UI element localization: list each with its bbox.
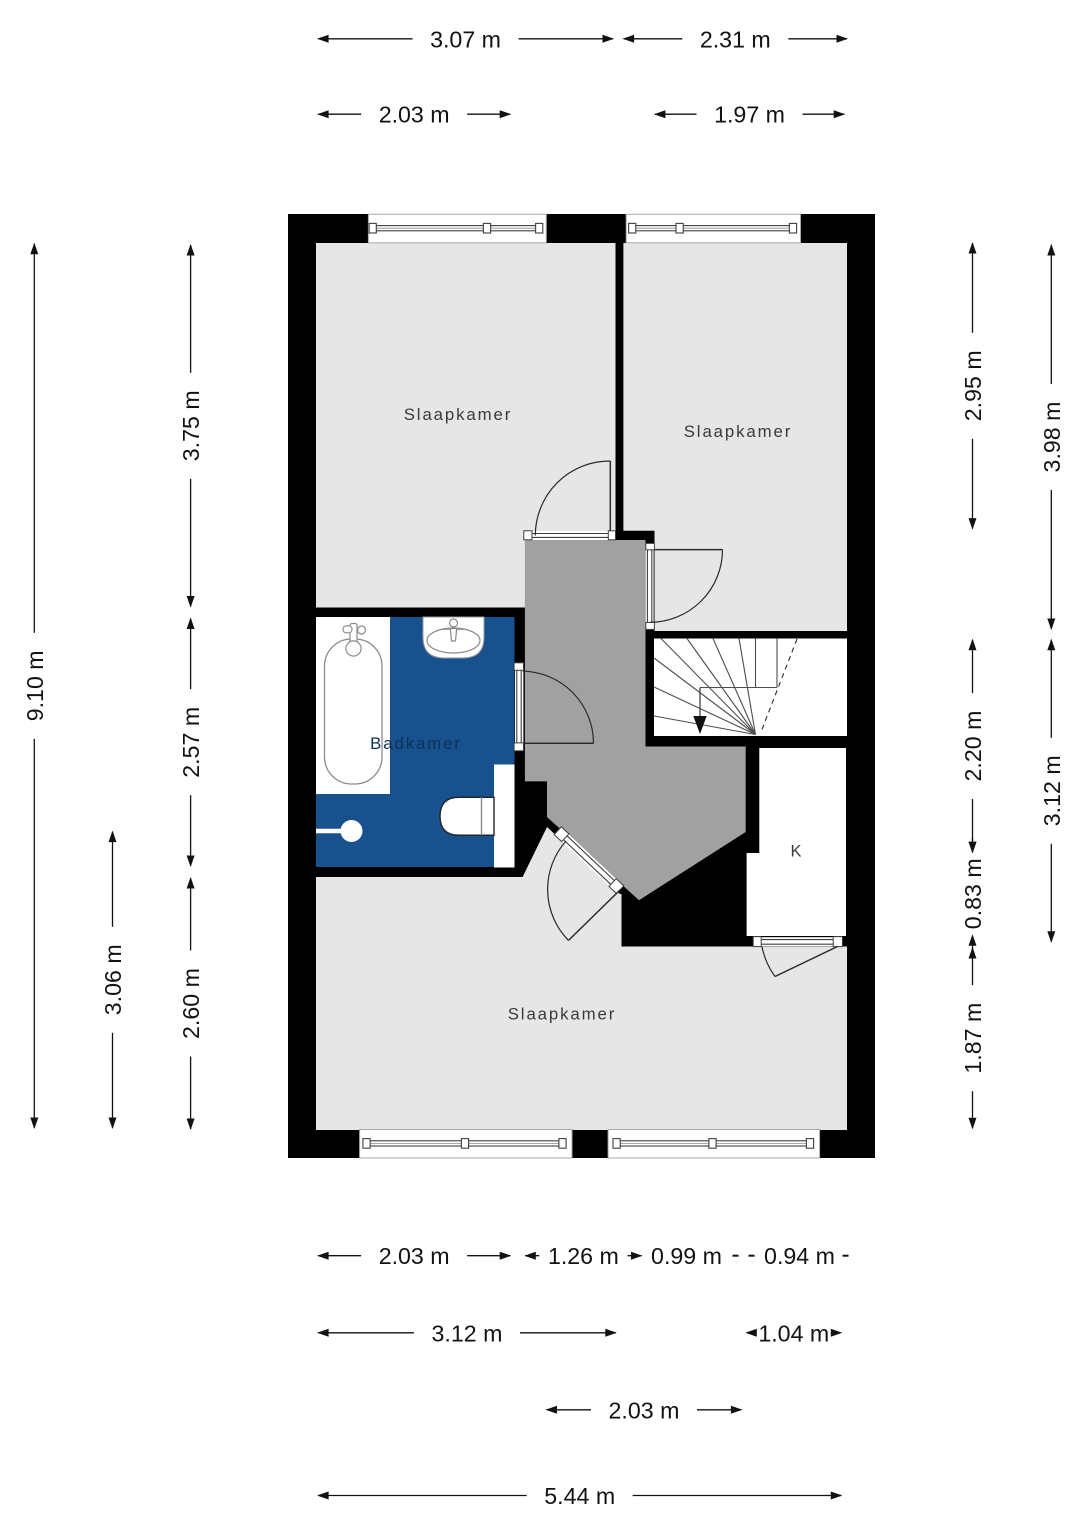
svg-text:2.03 m: 2.03 m [609,1397,680,1423]
svg-text:0.83 m: 0.83 m [960,858,986,929]
svg-text:Slaapkamer: Slaapkamer [508,1005,617,1024]
svg-text:2.03 m: 2.03 m [379,1243,450,1269]
svg-text:2.03 m: 2.03 m [379,102,450,128]
svg-text:3.12 m: 3.12 m [432,1320,503,1346]
svg-text:2.95 m: 2.95 m [960,350,986,421]
svg-text:0.99 m: 0.99 m [651,1243,722,1269]
svg-text:2.31 m: 2.31 m [700,26,771,52]
svg-text:2.60 m: 2.60 m [178,968,204,1039]
svg-text:3.06 m: 3.06 m [100,944,126,1015]
svg-text:9.10 m: 9.10 m [22,650,48,721]
svg-text:3.98 m: 3.98 m [1039,402,1065,473]
svg-text:Slaapkamer: Slaapkamer [684,422,793,441]
svg-text:0.94 m: 0.94 m [764,1243,835,1269]
svg-text:1.87 m: 1.87 m [960,1003,986,1074]
svg-text:2.57 m: 2.57 m [178,707,204,778]
svg-text:2.20 m: 2.20 m [960,711,986,782]
svg-text:3.12 m: 3.12 m [1039,755,1065,826]
svg-text:Badkamer: Badkamer [370,734,462,753]
svg-text:1.04 m: 1.04 m [758,1320,829,1346]
svg-text:Slaapkamer: Slaapkamer [404,405,513,424]
svg-text:1.26 m: 1.26 m [548,1243,619,1269]
svg-text:5.44 m: 5.44 m [544,1483,615,1509]
svg-text:3.07 m: 3.07 m [430,26,501,52]
svg-text:1.97 m: 1.97 m [714,102,785,128]
svg-text:K: K [790,843,801,861]
svg-text:3.75 m: 3.75 m [178,390,204,461]
